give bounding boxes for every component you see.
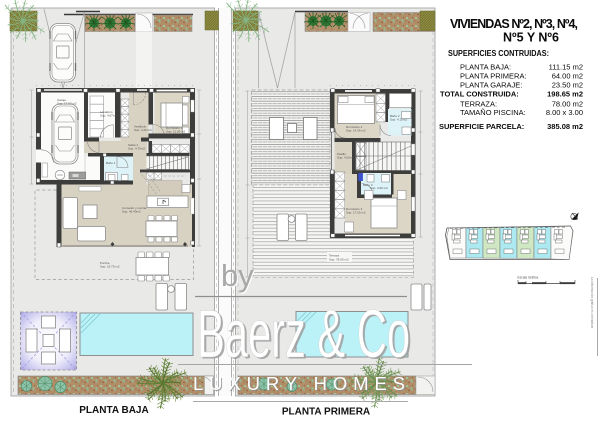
svg-text:by: by: [221, 258, 254, 293]
svg-text:Sup. 19.75 m2: Sup. 19.75 m2: [100, 264, 120, 268]
svg-text:Sup. 4.20 m2: Sup. 4.20 m2: [134, 128, 152, 132]
svg-text:SUPERFICIES CONTRUIDAS:: SUPERFICIES CONTRUIDAS:: [448, 49, 549, 58]
svg-text:PLANTA GARAJE:: PLANTA GARAJE:: [460, 81, 522, 90]
svg-text:8.00 x 3.00: 8.00 x 3.00: [546, 108, 583, 117]
svg-text:198.65 m2: 198.65 m2: [547, 90, 583, 99]
svg-text:PLANTA BAJA: PLANTA BAJA: [79, 405, 148, 416]
svg-text:Sup. 4.07m2: Sup. 4.07m2: [100, 113, 117, 117]
svg-text:SUPERFICIE PARCELA:: SUPERFICIE PARCELA:: [439, 122, 524, 131]
svg-text:Sup. 4.15m2: Sup. 4.15m2: [390, 117, 407, 121]
svg-text:Baerz & Co: Baerz & Co: [197, 296, 410, 372]
svg-text:Sup. 4.00m2: Sup. 4.00m2: [337, 155, 354, 159]
svg-text:Sup. 78.00 m2: Sup. 78.00 m2: [329, 258, 349, 262]
svg-text:VIVIENDAS Nº2, Nº3, Nº4,: VIVIENDAS Nº2, Nº3, Nº4,: [450, 17, 578, 31]
svg-text:111.15 m2: 111.15 m2: [549, 63, 583, 72]
svg-text:Sup. 14.35 m2: Sup. 14.35 m2: [346, 128, 366, 132]
svg-text:Sup. 4.75m2: Sup. 4.75m2: [128, 146, 145, 150]
svg-text:64.00 m2: 64.00 m2: [552, 72, 583, 81]
svg-text:TOTAL CONSTRUIDA:: TOTAL CONSTRUIDA:: [440, 90, 519, 99]
svg-text:Sup. 17.00 m2: Sup. 17.00 m2: [346, 210, 366, 214]
svg-text:Sup. 11.00 m2: Sup. 11.00 m2: [166, 129, 186, 133]
svg-text:Sup. 46.40m2: Sup. 46.40m2: [122, 209, 141, 213]
svg-text:TAMAÑO PISCINA:: TAMAÑO PISCINA:: [460, 108, 526, 117]
svg-text:Sup. 3.90 m2: Sup. 3.90 m2: [370, 186, 388, 190]
svg-text:PLANTA PRIMERA: PLANTA PRIMERA: [282, 407, 370, 418]
svg-text:Nº5 Y Nº6: Nº5 Y Nº6: [503, 31, 559, 45]
svg-text:PLANTA BAJA:: PLANTA BAJA:: [460, 63, 511, 72]
svg-text:23.50 m2: 23.50 m2: [552, 81, 583, 90]
svg-text:Sup. 17.00 m2: Sup. 17.00 m2: [57, 101, 77, 105]
svg-text:Escala Gráfica: Escala Gráfica: [518, 276, 539, 280]
svg-text:La información gráfica es orie: La información gráfica es orientativa: [590, 277, 594, 328]
svg-text:Baño 1: Baño 1: [106, 161, 116, 165]
svg-text:385.08 m2: 385.08 m2: [547, 122, 583, 131]
svg-text:PLANTA PRIMERA:: PLANTA PRIMERA:: [460, 72, 527, 81]
